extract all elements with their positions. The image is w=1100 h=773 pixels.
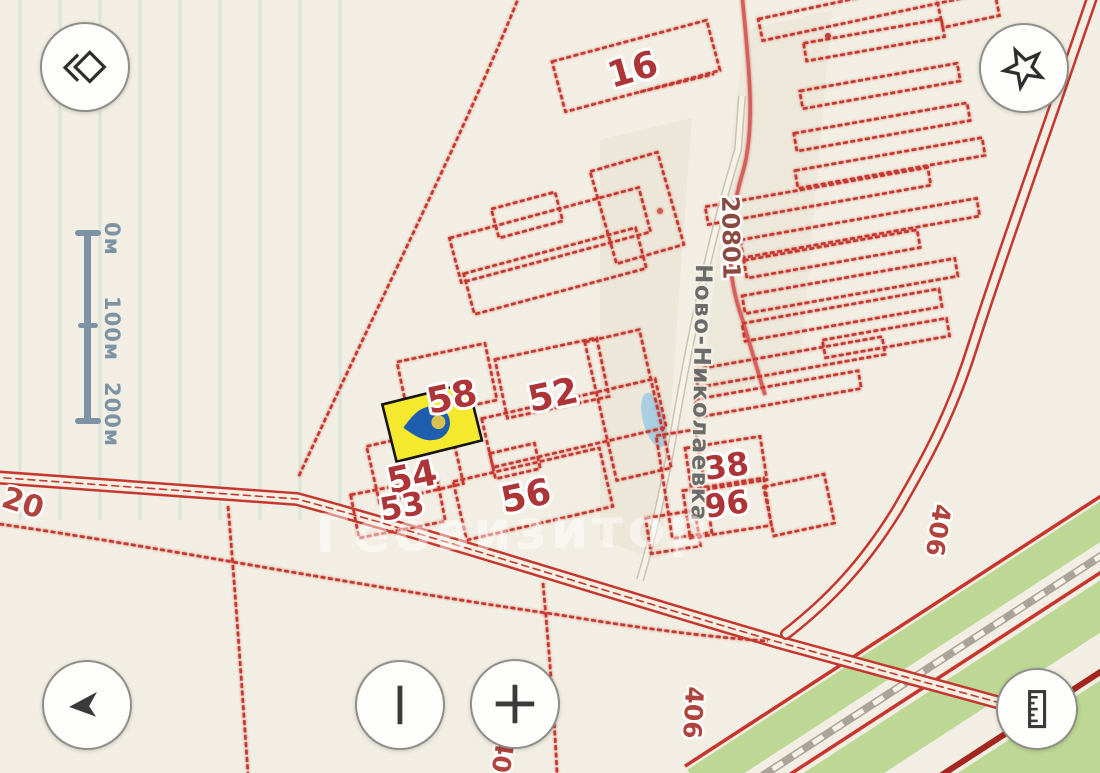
favorites-button[interactable] [979, 23, 1069, 113]
measure-button[interactable] [996, 668, 1078, 750]
vertical-bar-minus-icon [369, 674, 431, 736]
scale-tick-200 [75, 418, 101, 424]
street-label: Ново-Николаевка [686, 264, 716, 522]
parcel-label-53: 53 [377, 484, 427, 529]
ruler-icon [1009, 681, 1065, 737]
road-label-406-bottom: 406 [677, 686, 709, 740]
quarter-label-20801: 20801 [716, 196, 745, 280]
zoom-out-button[interactable] [355, 660, 445, 750]
map-canvas[interactable]: 16 20801 52 58 54 53 56 38 96 406 406 20… [0, 0, 1100, 773]
favorite-star-icon [993, 37, 1055, 99]
scale-tick-100 [78, 323, 98, 328]
scale-label-100: 100м [100, 296, 124, 361]
layers-diamond-icon [54, 36, 116, 98]
compass-arrow-icon [56, 674, 118, 736]
scale-label-0: 0м [100, 222, 124, 256]
zoom-in-button[interactable] [470, 659, 560, 749]
scale-tick-0 [75, 230, 101, 236]
map-app: 16 20801 52 58 54 53 56 38 96 406 406 20… [0, 0, 1100, 773]
layers-button[interactable] [40, 22, 130, 112]
compass-button[interactable] [42, 660, 132, 750]
scale-bar: 0м 100м 200м [72, 228, 142, 438]
plus-icon [484, 673, 546, 735]
scale-label-200: 200м [100, 382, 124, 447]
